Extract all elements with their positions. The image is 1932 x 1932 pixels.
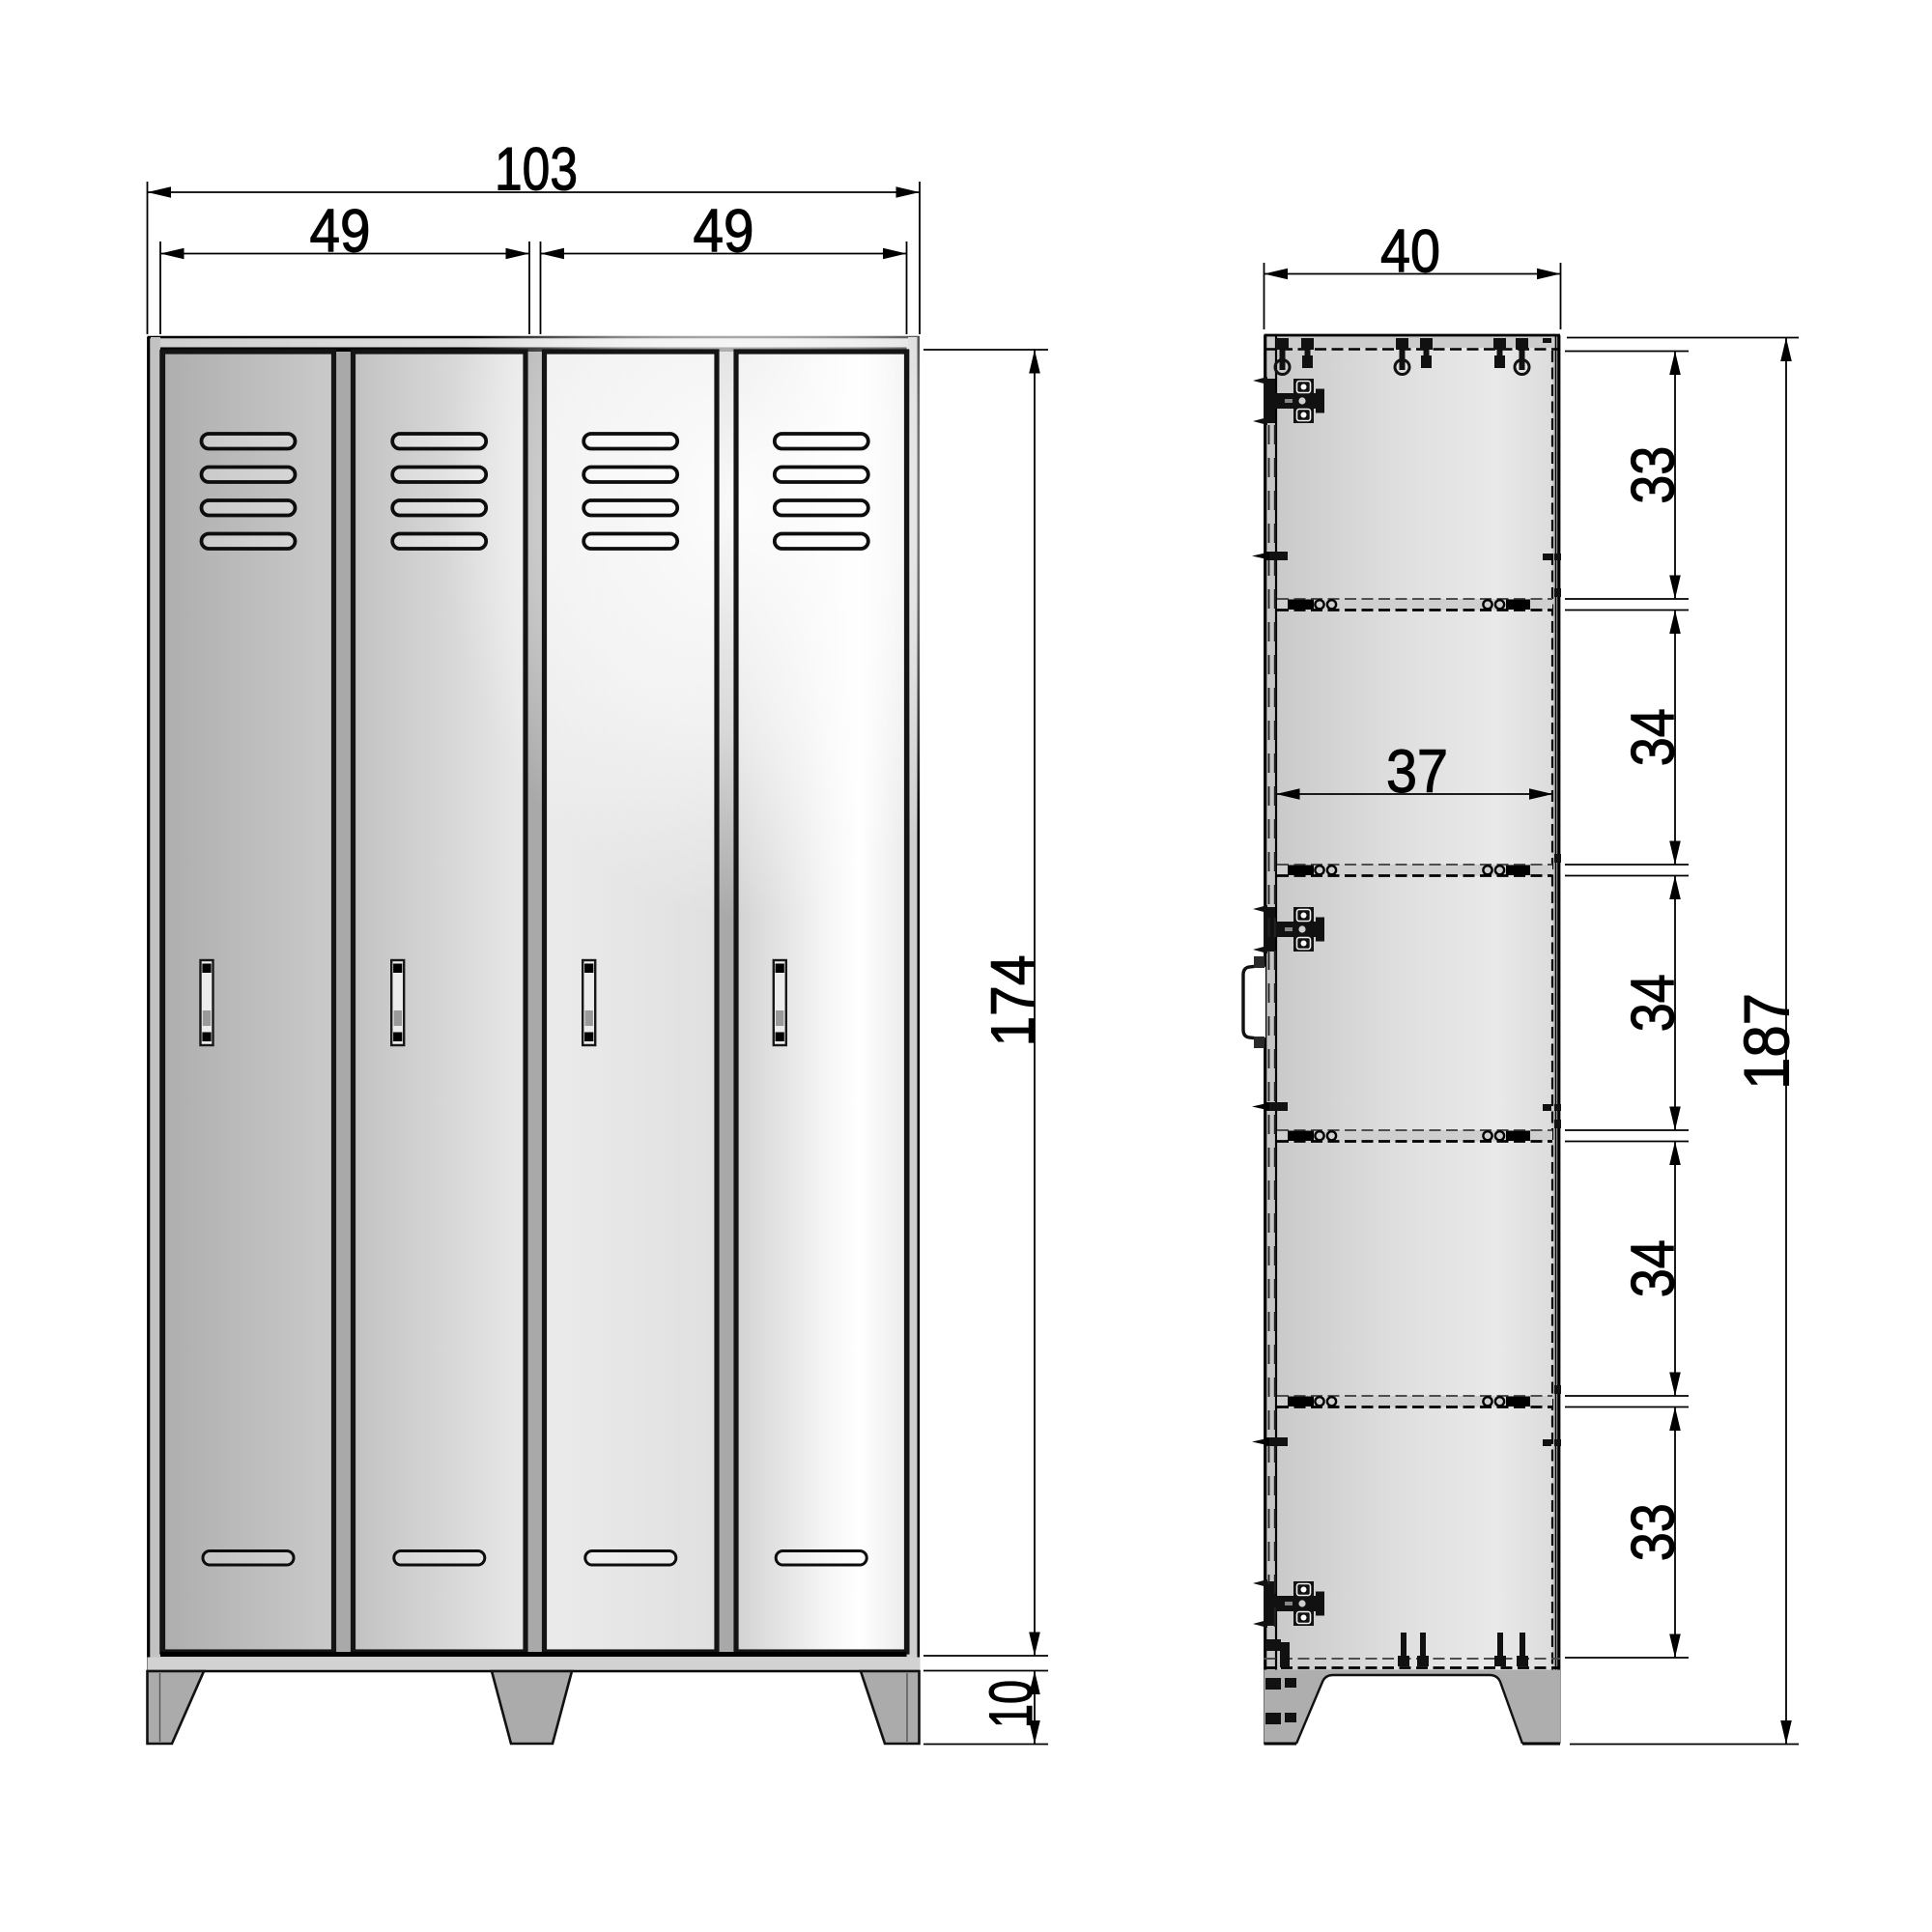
- svg-text:187: 187: [1731, 993, 1803, 1090]
- svg-text:10: 10: [978, 1680, 1045, 1728]
- svg-text:33: 33: [1620, 1503, 1688, 1561]
- svg-text:33: 33: [1620, 446, 1688, 504]
- svg-text:34: 34: [1620, 708, 1688, 766]
- svg-text:34: 34: [1620, 974, 1688, 1032]
- svg-text:49: 49: [694, 198, 754, 266]
- svg-text:174: 174: [980, 955, 1047, 1047]
- svg-text:49: 49: [310, 198, 371, 266]
- svg-text:103: 103: [495, 136, 578, 204]
- svg-text:37: 37: [1386, 738, 1448, 806]
- svg-text:40: 40: [1380, 218, 1440, 286]
- svg-text:34: 34: [1620, 1239, 1688, 1297]
